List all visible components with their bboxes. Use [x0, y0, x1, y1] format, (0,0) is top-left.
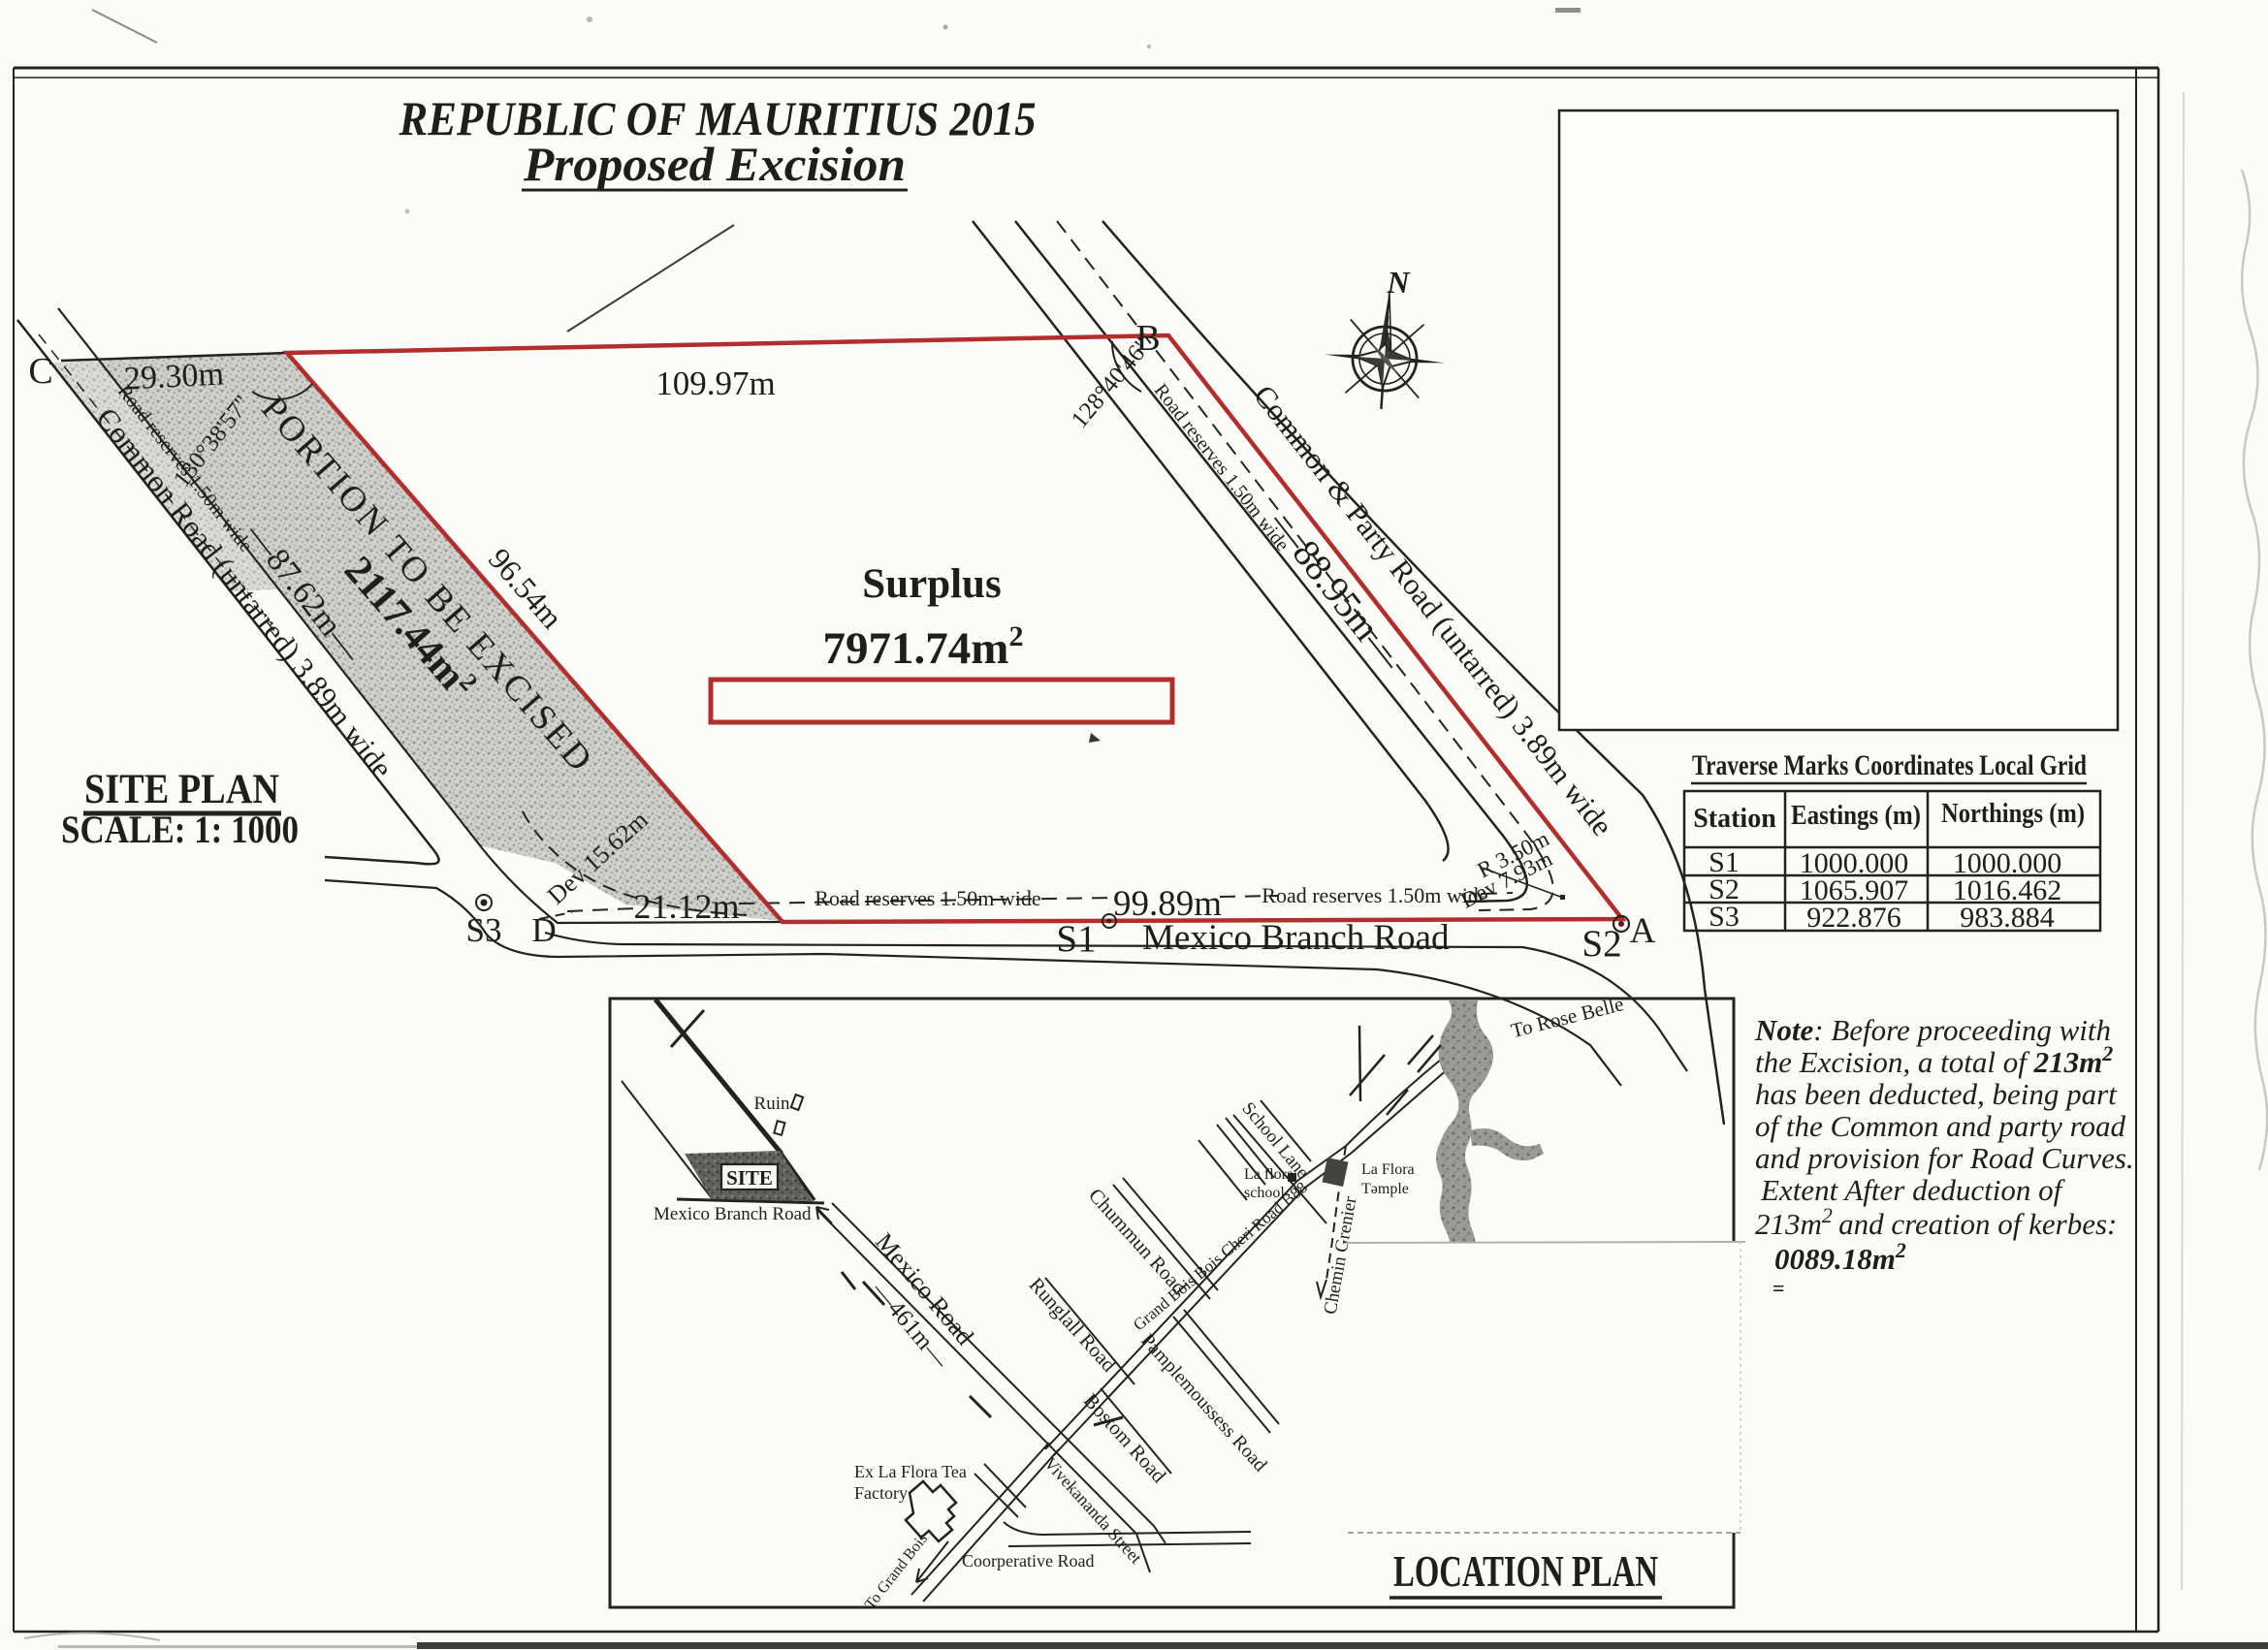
- svg-text:Extent After deduction of: Extent After deduction of: [1760, 1173, 2066, 1207]
- svg-text:Mexico Branch Road: Mexico Branch Road: [654, 1204, 812, 1224]
- svg-text:S1: S1: [1056, 918, 1096, 960]
- svg-text:C: C: [28, 351, 52, 392]
- svg-text:Traverse Marks Coordinates Loc: Traverse Marks Coordinates Local Grid: [1692, 749, 2087, 781]
- svg-text:Northings (m): Northings (m): [1941, 799, 2085, 829]
- svg-text:21.12m: 21.12m: [633, 887, 739, 926]
- svg-text:Coorperative Road: Coorperative Road: [962, 1551, 1094, 1571]
- svg-text:has been deducted, being part: has been deducted, being part: [1755, 1077, 2118, 1111]
- svg-text:the Excision, a total of 213m2: the Excision, a total of 213m2: [1755, 1041, 2113, 1079]
- svg-text:and provision for Road Curves.: and provision for Road Curves.: [1755, 1141, 2134, 1175]
- svg-text:0089.18m2: 0089.18m2: [1774, 1238, 1906, 1276]
- svg-text:S3: S3: [1709, 901, 1740, 933]
- svg-text:Proposed Excision: Proposed Excision: [523, 137, 906, 191]
- svg-text:of the Common and party road: of the Common and party road: [1755, 1109, 2126, 1143]
- svg-text:Station: Station: [1693, 804, 1776, 834]
- svg-text:SITE: SITE: [726, 1166, 773, 1190]
- svg-text:Mexico Branch Road: Mexico Branch Road: [1142, 918, 1450, 958]
- svg-text:213m2 and creation of kerbes:: 213m2 and creation of kerbes:: [1755, 1203, 2117, 1241]
- svg-text:La Flora: La Flora: [1361, 1161, 1415, 1178]
- svg-text:Surplus: Surplus: [862, 561, 1001, 607]
- svg-text:922.876: 922.876: [1806, 902, 1901, 934]
- svg-text:Ruin: Ruin: [754, 1094, 790, 1114]
- svg-text:983.884: 983.884: [1960, 902, 2055, 934]
- svg-text:7971.74m2: 7971.74m2: [823, 620, 1024, 674]
- svg-text:Road reserves 1.50m wide: Road reserves 1.50m wide: [1262, 883, 1487, 907]
- svg-text:N: N: [1386, 265, 1411, 300]
- svg-text:Təmple: Təmple: [1361, 1181, 1409, 1197]
- svg-text:school: school: [1244, 1185, 1285, 1201]
- svg-text:Note: Before proceeding with: Note: Before proceeding with: [1754, 1013, 2111, 1047]
- svg-text:D: D: [531, 911, 556, 949]
- svg-text:109.97m: 109.97m: [655, 365, 775, 402]
- svg-text:SITE PLAN: SITE PLAN: [84, 767, 279, 812]
- svg-text:=: =: [1773, 1276, 1785, 1300]
- svg-text:Factory: Factory: [854, 1483, 908, 1503]
- svg-text:A: A: [1630, 911, 1656, 951]
- svg-text:S3: S3: [466, 911, 502, 949]
- svg-text:Road reserves 1.50m wide: Road reserves 1.50m wide: [815, 886, 1040, 910]
- svg-text:La flora: La flora: [1244, 1166, 1294, 1183]
- svg-text:SCALE: 1: 1000: SCALE: 1: 1000: [61, 808, 299, 851]
- svg-text:Ex La Flora Tea: Ex La Flora Tea: [854, 1462, 967, 1481]
- svg-text:LOCATION PLAN: LOCATION PLAN: [1393, 1547, 1658, 1596]
- svg-text:Eastings (m): Eastings (m): [1791, 801, 1921, 831]
